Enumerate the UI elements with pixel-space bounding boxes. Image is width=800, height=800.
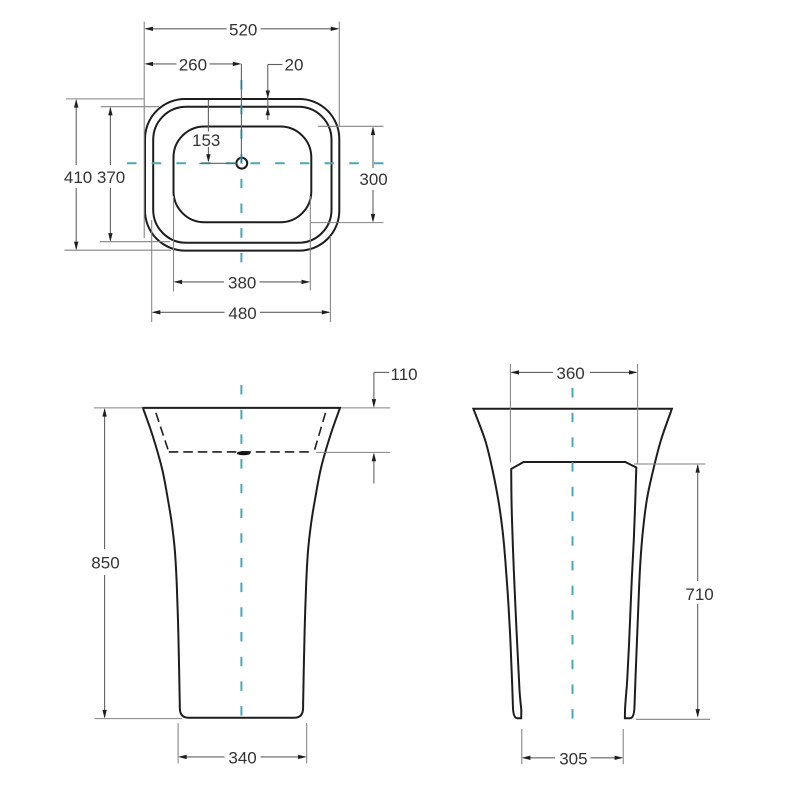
svg-text:20: 20 <box>285 55 304 74</box>
svg-text:305: 305 <box>559 749 587 768</box>
svg-text:480: 480 <box>228 304 256 323</box>
svg-text:710: 710 <box>685 585 713 604</box>
svg-text:360: 360 <box>556 364 584 383</box>
svg-text:370: 370 <box>97 168 125 187</box>
svg-text:520: 520 <box>229 20 257 39</box>
svg-text:850: 850 <box>91 553 119 572</box>
svg-text:260: 260 <box>179 55 207 74</box>
svg-text:340: 340 <box>228 748 256 767</box>
svg-text:153: 153 <box>192 131 220 150</box>
svg-text:300: 300 <box>359 170 387 189</box>
svg-text:110: 110 <box>391 365 418 384</box>
svg-text:410: 410 <box>64 168 92 187</box>
svg-text:380: 380 <box>228 273 256 292</box>
